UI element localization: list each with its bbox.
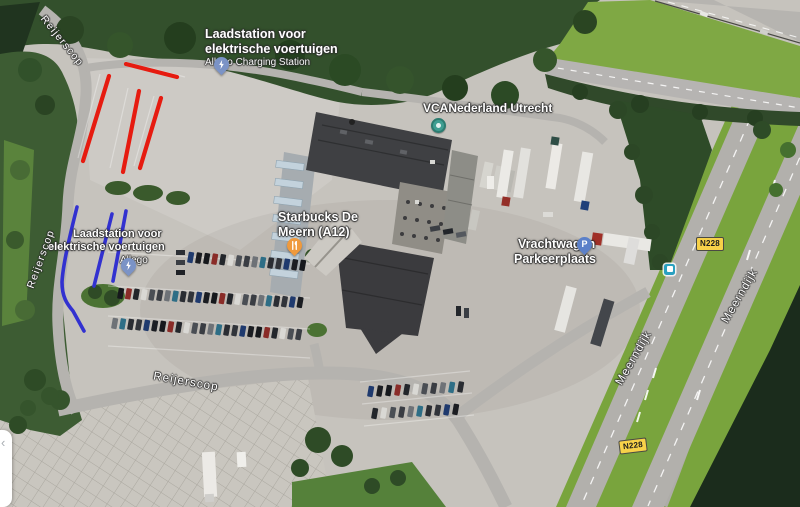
satellite-map[interactable]: Laadstation voor elektrische voertuigen … bbox=[0, 0, 800, 507]
parking-letter: P bbox=[577, 237, 592, 252]
label-charging-station-left[interactable]: Laadstation voor elektrische voertuigen … bbox=[73, 228, 165, 266]
parking-pin[interactable]: P bbox=[574, 234, 595, 255]
fork-knife-icon bbox=[289, 240, 300, 251]
label-starbucks[interactable]: Starbucks De Meern (A12) bbox=[278, 210, 358, 239]
side-panel-edge: ‹ bbox=[0, 430, 12, 507]
label-vca-nederland[interactable]: VCANederland Utrecht bbox=[423, 102, 552, 116]
poi-dot-center bbox=[436, 123, 441, 128]
chevron-left-icon[interactable]: ‹ bbox=[1, 436, 5, 449]
bus-stop-icon[interactable] bbox=[664, 264, 675, 275]
lightning-icon bbox=[216, 59, 227, 70]
lightning-icon bbox=[123, 260, 134, 271]
poi-dot[interactable] bbox=[431, 118, 446, 133]
route-badge-n228: N228 bbox=[696, 237, 724, 251]
